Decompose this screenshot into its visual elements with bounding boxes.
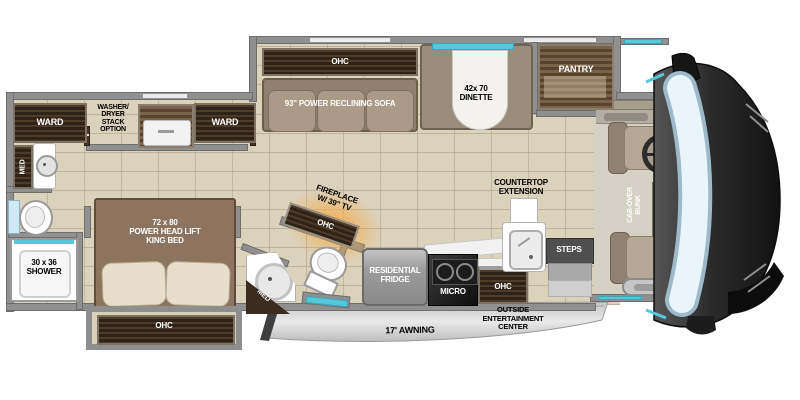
countertop-extension-sink <box>502 222 546 272</box>
micro-cooktop <box>428 254 478 306</box>
ward-right-label: WARD <box>194 117 256 127</box>
kitchen-ohc-label: OHC <box>478 282 528 291</box>
fridge-label: RESIDENTIAL FRIDGE <box>362 266 428 284</box>
wall-gap-3 <box>143 94 187 98</box>
shower-glass <box>14 240 74 244</box>
sofa-label: 93" POWER RECLINING SOFA <box>258 99 422 108</box>
outside-entertainment-label: OUTSIDE ENTERTAINMENT CENTER <box>472 306 554 332</box>
dinette-label: 42x 70 DINETTE <box>432 84 520 102</box>
front-cap <box>628 52 800 344</box>
cap-foot <box>686 316 716 335</box>
washer-dryer-label: WASHER/ DRYER STACK OPTION <box>88 104 138 133</box>
burner-icon <box>436 263 454 281</box>
countertop-extension-label: COUNTERTOP EXTENSION <box>482 178 560 196</box>
pantry-cabinet <box>538 44 614 110</box>
wall-main-top-left <box>6 92 253 100</box>
ward-left-label: WARD <box>13 117 87 127</box>
bed-ohc-label: OHC <box>92 321 236 330</box>
awning-label: 17' AWNING <box>360 324 460 336</box>
washer-dryer-unit <box>138 104 194 148</box>
wall-gap-2 <box>524 38 596 42</box>
king-bed <box>94 198 236 312</box>
toilet-front <box>8 198 56 236</box>
med-cabinet-front: MED <box>13 145 33 189</box>
shower-label: 30 x 36 SHOWER <box>10 258 78 276</box>
king-bed-label: 72 x 80 POWER HEAD LIFT KING BED <box>94 218 236 246</box>
burner-icon <box>456 263 474 281</box>
steps-label: STEPS <box>546 245 592 254</box>
pantry-label: PANTRY <box>538 64 614 74</box>
dinette-window <box>432 43 514 50</box>
wall-gap-1 <box>310 38 390 42</box>
bath-sink-bowl <box>36 155 58 177</box>
living-ohc-label: OHC <box>262 57 418 66</box>
med-front-label: MED <box>19 160 27 175</box>
windshield-glass <box>680 88 695 300</box>
micro-label: MICRO <box>428 287 478 296</box>
cab-over-bunk-label: CAB-OVER BUNK <box>627 163 653 247</box>
wall-bed-post-left <box>84 206 91 238</box>
rv-floorplan-diagram: 17' AWNING OUTSIDE ENTERTAINMENT CENTER … <box>0 0 800 400</box>
cab-roof-window <box>624 39 662 44</box>
bath-sink-counter <box>33 143 56 189</box>
